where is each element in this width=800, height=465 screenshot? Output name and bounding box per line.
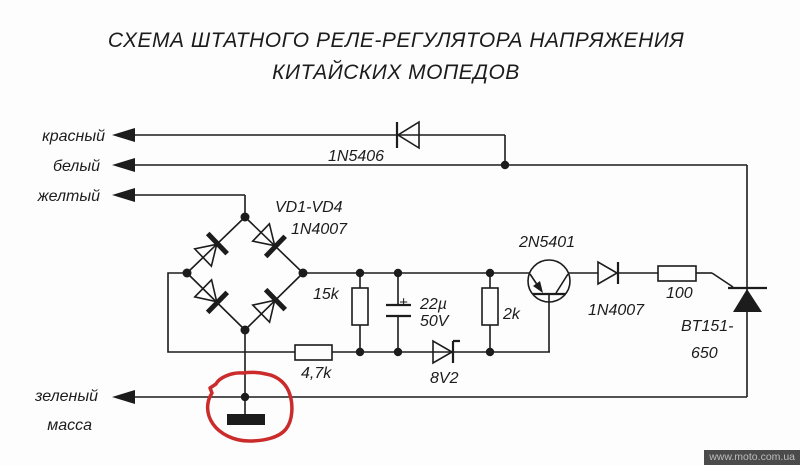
schematic-canvas: СХЕМА ШТАТНОГО РЕЛЕ-РЕГУЛЯТОРА НАПРЯЖЕНИ…: [0, 0, 800, 465]
label-ground-wire: масса: [47, 417, 92, 434]
electrolytic-capacitor-icon: [386, 273, 411, 352]
yellow-wire: [112, 188, 245, 217]
junction-dot: [486, 269, 494, 277]
resistor-4k7: [295, 345, 332, 360]
label-red-wire: красный: [42, 128, 105, 145]
resistor-2k: [482, 273, 498, 352]
white-wire-arrow-icon: [112, 158, 135, 172]
junction-dot: [356, 348, 364, 356]
label-100: 100: [666, 285, 693, 302]
label-8v2: 8V2: [430, 370, 459, 387]
label-1n5406: 1N5406: [328, 148, 384, 165]
thyristor-bt151-icon: [728, 165, 767, 397]
resistor-15k: [352, 273, 368, 352]
schematic-title-line1: СХЕМА ШТАТНОГО РЕЛЕ-РЕГУЛЯТОРА НАПРЯЖЕНИ…: [108, 29, 685, 52]
diode-1n4007-output-icon: [598, 262, 658, 284]
bridge-rectifier: [183, 213, 308, 335]
label-green-wire: зеленый: [34, 388, 98, 405]
label-2k: 2k: [502, 306, 521, 323]
schematic-title-line2: КИТАЙСКИХ МОПЕДОВ: [272, 61, 520, 84]
junction-dot: [394, 348, 402, 356]
label-cap-voltage: 50V: [420, 313, 450, 330]
label-white-wire: белый: [53, 158, 100, 175]
ground-symbol-icon: [227, 397, 265, 425]
label-4k7: 4,7k: [301, 365, 332, 382]
label-15k: 15k: [313, 286, 340, 303]
junction-dot: [394, 269, 402, 277]
red-wire-arrow-icon: [112, 128, 135, 142]
transistor-2n5401-icon: [528, 260, 570, 352]
resistor-100: [658, 266, 733, 287]
watermark: www.moto.com.ua: [704, 450, 800, 465]
label-2n5401: 2N5401: [518, 234, 575, 251]
label-650: 650: [691, 345, 718, 362]
junction-dot: [241, 213, 250, 222]
red-wire: [112, 128, 505, 165]
label-bt151: BT151-: [681, 318, 733, 335]
junction-dot: [501, 161, 509, 169]
label-output-1n4007: 1N4007: [588, 302, 645, 319]
label-cap-value: 22µ: [419, 296, 447, 313]
label-bridge-1n4007: 1N4007: [291, 221, 348, 238]
label-yellow-wire: желтый: [37, 188, 101, 205]
junction-dot: [356, 269, 364, 277]
white-wire: [112, 158, 747, 172]
label-vd1-vd4: VD1-VD4: [275, 199, 343, 216]
red-highlight-circle: [208, 372, 292, 441]
green-wire-arrow-icon: [112, 390, 135, 404]
junction-dot: [486, 348, 494, 356]
label-cap-plus: +: [399, 294, 408, 311]
yellow-wire-arrow-icon: [112, 188, 135, 202]
